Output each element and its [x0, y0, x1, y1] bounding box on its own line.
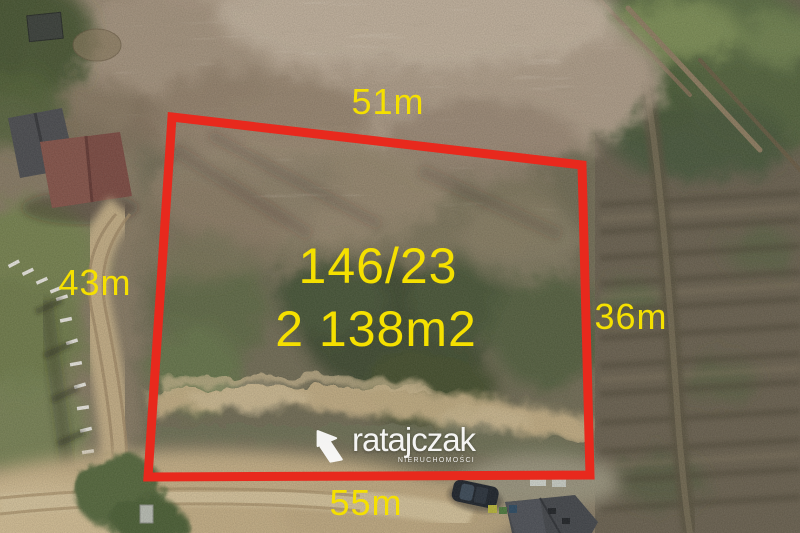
- watermark-subtitle: NIERUCHOMOŚCI: [398, 457, 475, 464]
- dimension-label-top: 51m: [351, 81, 424, 123]
- watermark-brand-text: ratajczak: [352, 424, 475, 456]
- plot-area-label: 2 138m2: [275, 300, 477, 358]
- aerial-listing-photo: 51m 43m 36m 55m 146/23 2 138m2 ratajczak…: [0, 0, 800, 533]
- ratajczak-logo-icon: [312, 426, 346, 466]
- dimension-label-left: 43m: [58, 262, 131, 304]
- dimension-label-bottom: 55m: [329, 482, 402, 524]
- agency-watermark: ratajczak NIERUCHOMOŚCI: [312, 424, 475, 466]
- plot-number-label: 146/23: [299, 237, 458, 295]
- dimension-label-right: 36m: [594, 296, 667, 338]
